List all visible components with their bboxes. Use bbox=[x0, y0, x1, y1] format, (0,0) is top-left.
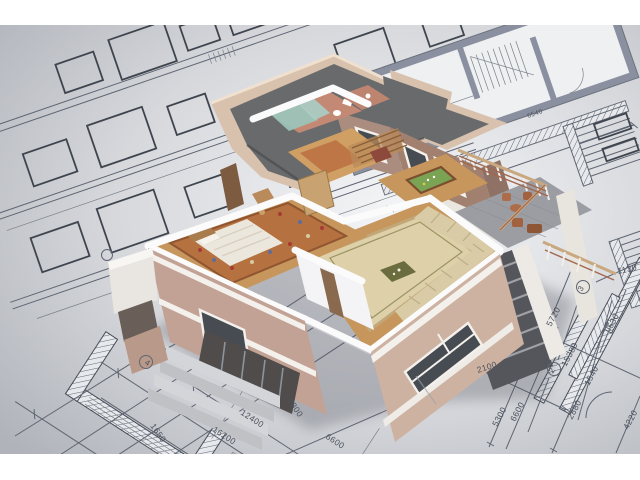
toilet bbox=[333, 110, 341, 116]
top-margin bbox=[0, 0, 640, 25]
architectural-render: 1650 16200 12400 2300 6600 2100 5300 660… bbox=[0, 0, 640, 480]
bottom-margin bbox=[0, 454, 640, 480]
render-canvas: 1650 16200 12400 2300 6600 2100 5300 660… bbox=[0, 0, 640, 480]
